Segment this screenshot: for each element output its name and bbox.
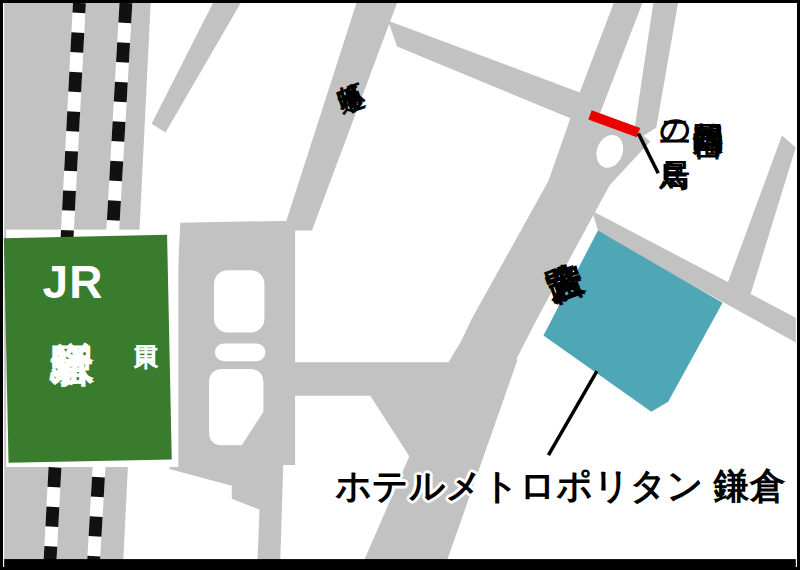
map-border-bottom <box>4 559 796 567</box>
station-label-jr: JR <box>36 259 110 305</box>
station-label: JR 鎌倉駅 <box>36 259 110 313</box>
torii-label-gate: 二の鳥居 <box>659 99 692 274</box>
torii-label-shrine: 鶴岡八幡宮 <box>692 99 725 274</box>
hotel-name-label: ホテルメトロポリタン 鎌倉 <box>335 462 785 511</box>
station-label-name: 鎌倉駅 <box>50 307 96 313</box>
rotary-island-upper <box>214 270 264 332</box>
road-station-east <box>289 362 515 396</box>
torii-gate-label: 鶴岡八幡宮 二の鳥居 <box>659 99 725 274</box>
east-exit-label: 東口 <box>132 324 161 328</box>
rotary-island-bar <box>215 343 265 361</box>
kamakura-access-map: JR 鎌倉駅 東口 小町通り 若宮大路 鶴岡八幡宮 二の鳥居 ホテルメトロポリタ… <box>0 0 800 570</box>
